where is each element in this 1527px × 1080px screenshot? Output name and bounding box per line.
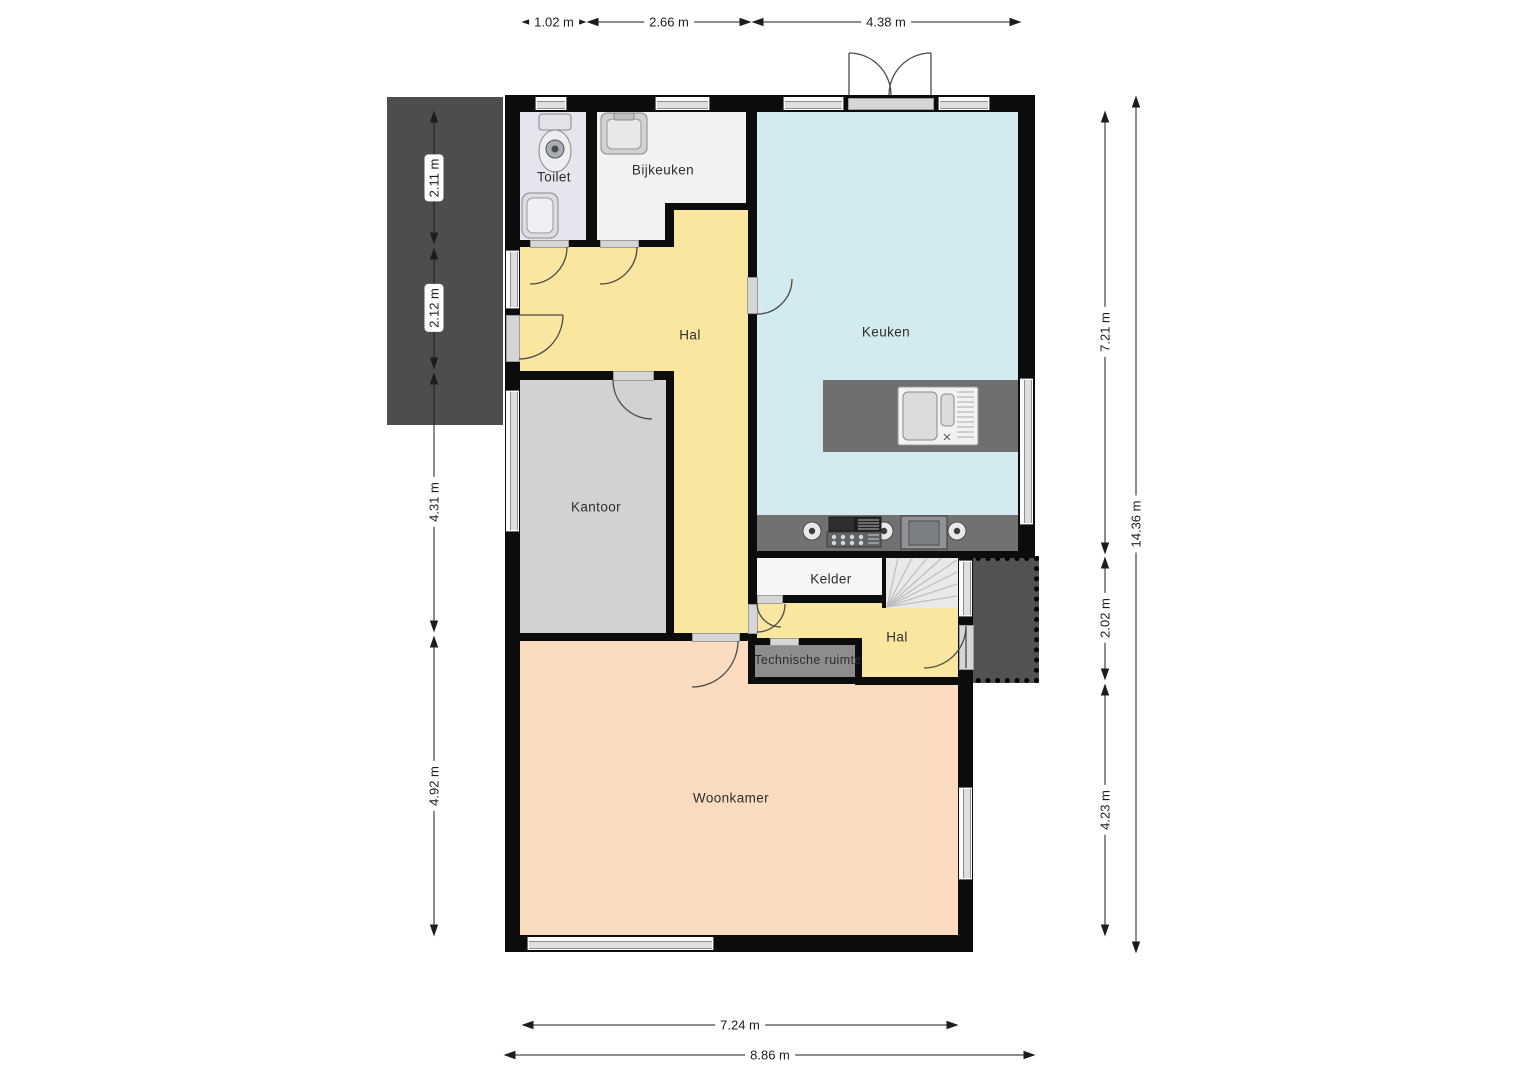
kitchen-counter: [757, 515, 1018, 551]
entrance-door-threshold: [959, 625, 974, 670]
window: [506, 390, 519, 532]
door-hal2: [748, 604, 758, 634]
window: [506, 250, 519, 309]
label-kelder: Kelder: [810, 572, 851, 587]
door-bijkeuken: [600, 240, 639, 248]
label-technische-ruimte: Technische ruimte: [754, 653, 862, 667]
window: [959, 560, 972, 617]
label-kantoor: Kantoor: [571, 500, 621, 515]
room-hal2-right: [862, 608, 958, 677]
dim-bottom-1: 7.24 m: [715, 1017, 765, 1034]
window: [938, 97, 990, 110]
wall-kelder-stairs: [882, 558, 886, 608]
dim-bottom-2: 8.86 m: [745, 1047, 795, 1064]
staircase: [886, 558, 958, 608]
label-keuken: Keuken: [862, 325, 910, 340]
door-keuken: [747, 277, 758, 314]
label-hal2: Hal: [886, 630, 907, 645]
dim-left-4: 4.92 m: [426, 761, 443, 811]
room-woonkamer: [520, 641, 958, 935]
window: [527, 937, 714, 950]
dim-left-2: 2.12 m: [425, 284, 444, 332]
deck-right-dotted: [966, 556, 1039, 683]
dim-left-1: 2.11 m: [425, 155, 444, 202]
dim-right-3: 4.23 m: [1097, 785, 1114, 835]
deck-left: [387, 97, 503, 425]
french-door-threshold: [848, 98, 934, 110]
door-technische-ruimte: [770, 638, 799, 646]
window: [783, 97, 844, 110]
dim-left-3: 4.31 m: [426, 477, 443, 527]
room-keuken: [757, 112, 1018, 515]
dim-right-1: 7.21 m: [1097, 307, 1114, 357]
door-toilet: [530, 240, 569, 248]
window: [959, 787, 972, 880]
label-hal: Hal: [679, 328, 700, 343]
front-door-threshold: [506, 315, 520, 362]
label-toilet: Toilet: [537, 170, 571, 185]
dim-top-1: 1.02 m: [529, 14, 579, 31]
door-kelder: [757, 595, 783, 604]
label-woonkamer: Woonkamer: [693, 791, 769, 806]
window: [535, 97, 567, 110]
floor-plan: Toilet Bijkeuken Keuken Hal Kantoor Keld…: [0, 0, 1527, 1080]
door-woonkamer: [692, 633, 740, 642]
window: [1020, 378, 1033, 525]
label-bijkeuken: Bijkeuken: [632, 163, 694, 178]
door-kantoor: [613, 371, 654, 381]
room-hal-upper: [520, 247, 748, 371]
wall-below-hal2: [855, 677, 973, 685]
dim-right-2: 2.02 m: [1097, 593, 1114, 643]
dim-right-outer: 14.36 m: [1128, 496, 1145, 553]
dim-top-3: 4.38 m: [861, 14, 911, 31]
window: [655, 97, 710, 110]
dim-top-2: 2.66 m: [644, 14, 694, 31]
